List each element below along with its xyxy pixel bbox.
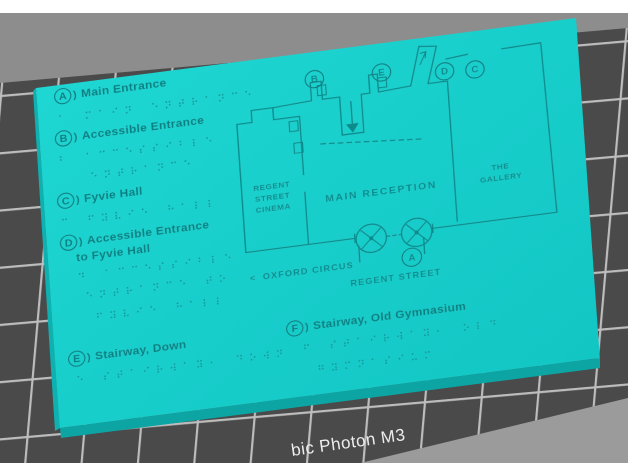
- model-tactile-map[interactable]: A ) Main Entrance ⠁⠀⠍⠁⠊⠝⠀⠑⠝⠞⠗⠁⠝⠉⠑ B ) Ac…: [33, 18, 600, 438]
- oxford-circus-arrow: <: [250, 273, 257, 283]
- legend-letter: D: [64, 238, 73, 250]
- legend-paren: ): [87, 353, 91, 364]
- legend-letter: F: [291, 324, 298, 335]
- legend-letter: C: [61, 196, 70, 208]
- legend-paren: ): [73, 90, 77, 101]
- legend-paren: ): [305, 322, 309, 333]
- marker-letter: D: [441, 65, 449, 76]
- slicer-3d-viewport[interactable]: bic Photon M3 A ) Main Entrance ⠁⠀⠍⠁⠊⠝⠀⠑…: [0, 0, 628, 472]
- window-top-band: [0, 0, 628, 13]
- legend-paren: ): [79, 237, 83, 248]
- legend-paren: ): [76, 195, 80, 206]
- scene-svg[interactable]: bic Photon M3 A ) Main Entrance ⠁⠀⠍⠁⠊⠝⠀⠑…: [0, 0, 628, 472]
- legend-letter: A: [59, 91, 68, 103]
- legend-letter: B: [59, 134, 68, 146]
- window-bottom-band: [0, 463, 628, 472]
- marker-letter: B: [310, 73, 318, 84]
- legend-letter: E: [73, 354, 81, 365]
- legend-paren: ): [73, 132, 77, 143]
- marker-letter: A: [408, 252, 416, 263]
- marker-letter: C: [471, 63, 479, 74]
- marker-letter: E: [378, 66, 385, 77]
